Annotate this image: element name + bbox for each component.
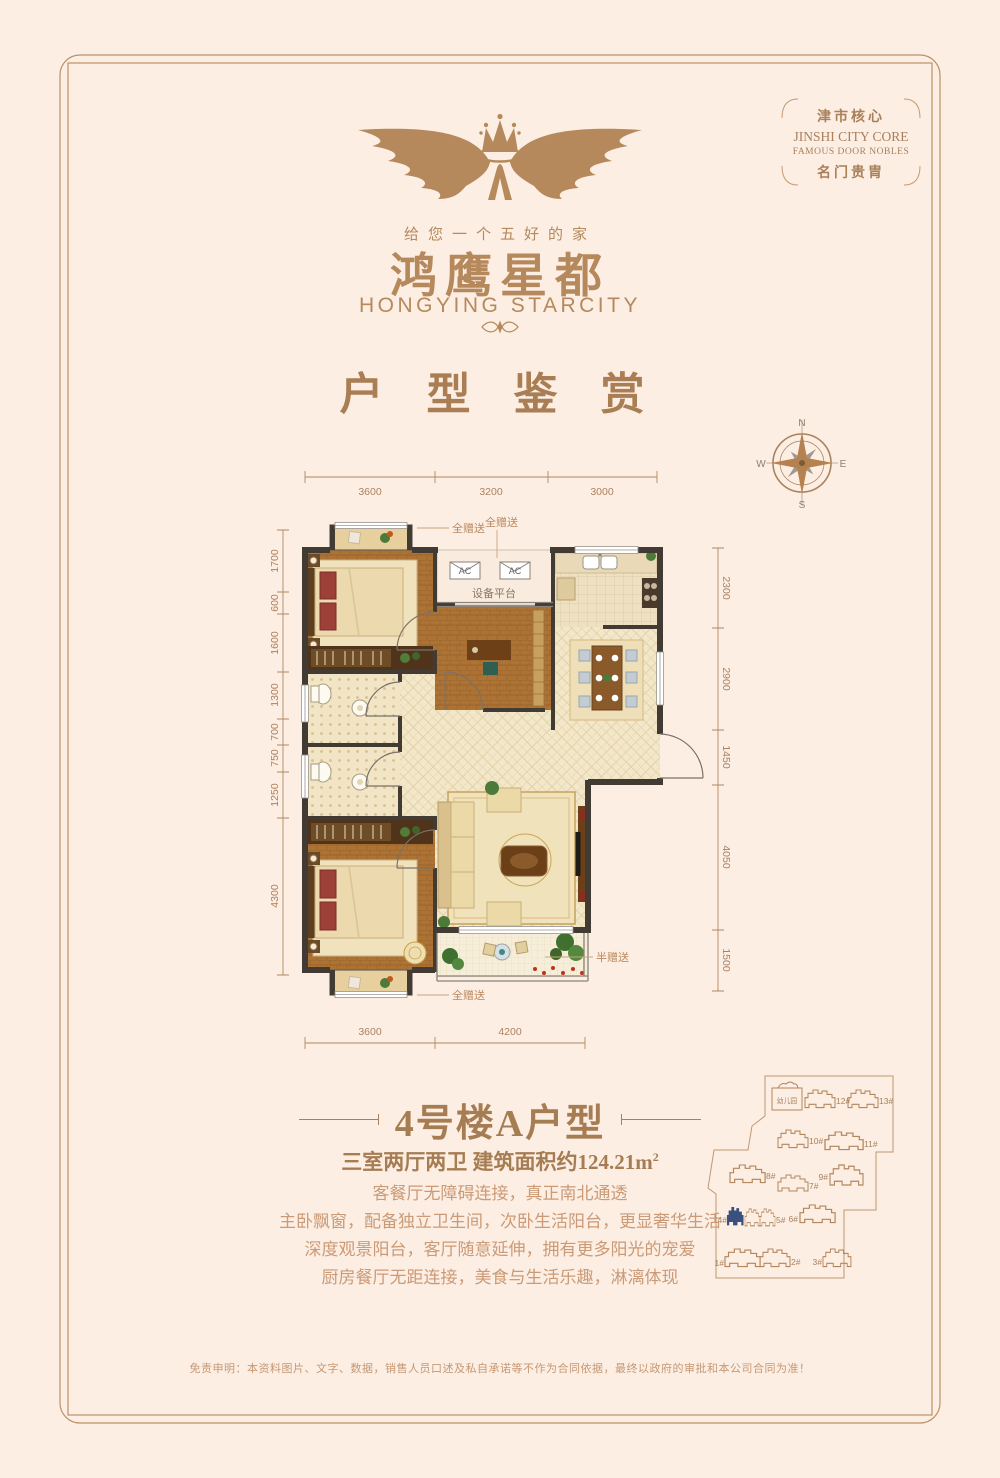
site-map: 幼儿园 12# 13# 10# 11# 8# 7# 9# 4# 5# 6# 1#… [705, 1068, 957, 1296]
dim-right-3: 1450 [720, 745, 732, 769]
unit-title: 4号楼A户型 [395, 1092, 605, 1147]
building-label-8: 8# [766, 1171, 776, 1181]
compass-rose-icon: N E S W [756, 417, 848, 509]
compass-s: S [799, 500, 806, 509]
site-buildings [725, 1082, 878, 1267]
building-label-4: 4# [718, 1215, 728, 1225]
dim-right-5: 1500 [720, 948, 732, 972]
building-4-highlighted [727, 1207, 744, 1225]
badge-bracket-icon [780, 98, 922, 188]
dim-left-8: 4300 [269, 884, 281, 908]
entry-door [660, 734, 703, 778]
dim-left-6: 750 [269, 749, 281, 767]
compass-e: E [840, 459, 847, 470]
site-building-labels: 幼儿园 12# 13# 10# 11# 8# 7# 9# 4# 5# 6# 1#… [715, 1096, 894, 1268]
half-gift-label-balcony: 半赠送 [596, 950, 629, 964]
building-label-11: 11# [864, 1139, 878, 1149]
building-label-3: 3# [813, 1257, 823, 1267]
flourish-ornament-icon [478, 318, 522, 336]
building-label-7: 7# [809, 1181, 819, 1191]
dim-bottom-2: 4200 [498, 1026, 522, 1038]
kindergarten-label: 幼儿园 [777, 1096, 798, 1105]
ac-unit-label-1: AC [459, 566, 472, 576]
disclaimer: 免责申明：本资料图片、文字、数据，销售人员口述及私自承诺等不作为合同依据，最终以… [0, 1360, 1000, 1376]
corner-badge: 津市核心 JINSHI CITY CORE FAMOUS DOOR NOBLES… [780, 98, 922, 188]
building-label-6: 6# [789, 1214, 799, 1224]
dim-right-1: 2300 [720, 576, 732, 600]
building-label-9: 9# [819, 1172, 829, 1182]
gift-label-platform: 全赠送 [485, 515, 518, 529]
gift-label-bay-bottom: 全赠送 [452, 988, 485, 1002]
title-rule-right [621, 1119, 701, 1120]
building-label-13: 13# [879, 1096, 893, 1106]
building-label-2: 2# [791, 1257, 801, 1267]
floor-plan: 全赠送 全赠送 全赠送 半赠送 设备平台 AC AC 3600 3200 300… [245, 450, 735, 1062]
dim-left-5: 700 [269, 723, 281, 741]
dim-left-3: 1600 [269, 631, 281, 655]
page-title: 户 型 鉴 赏 [0, 358, 1000, 422]
compass-n: N [798, 418, 805, 429]
dim-left-4: 1300 [269, 683, 281, 707]
building-label-1: 1# [715, 1258, 725, 1268]
brand-name-en: HONGYING STARCITY [0, 294, 1000, 318]
title-rule-left [299, 1119, 379, 1120]
compass-w: W [756, 459, 766, 470]
unit-spec-text: 三室两厅两卫 建筑面积约124.21m [341, 1150, 653, 1174]
dim-top-2: 3200 [479, 486, 503, 498]
dim-left-2: 600 [269, 594, 281, 612]
winged-crown-logo-icon [350, 106, 650, 208]
dim-left-7: 1250 [269, 783, 281, 807]
ac-unit-label-2: AC [509, 566, 522, 576]
dim-left-1: 1700 [269, 549, 281, 573]
building-label-12: 12# [836, 1096, 850, 1106]
poster-page: 津市核心 JINSHI CITY CORE FAMOUS DOOR NOBLES… [0, 0, 1000, 1478]
unit-spec-sup: 2 [653, 1150, 659, 1164]
dim-right-2: 2900 [720, 667, 732, 691]
dim-bottom-1: 3600 [358, 1026, 382, 1038]
building-label-5: 5# [776, 1215, 786, 1225]
dim-top-1: 3600 [358, 486, 382, 498]
dim-top-3: 3000 [590, 486, 614, 498]
equipment-platform-label: 设备平台 [472, 586, 516, 600]
gift-label-bay-top: 全赠送 [452, 521, 485, 535]
building-label-10: 10# [809, 1136, 823, 1146]
dim-right-4: 4050 [720, 845, 732, 869]
